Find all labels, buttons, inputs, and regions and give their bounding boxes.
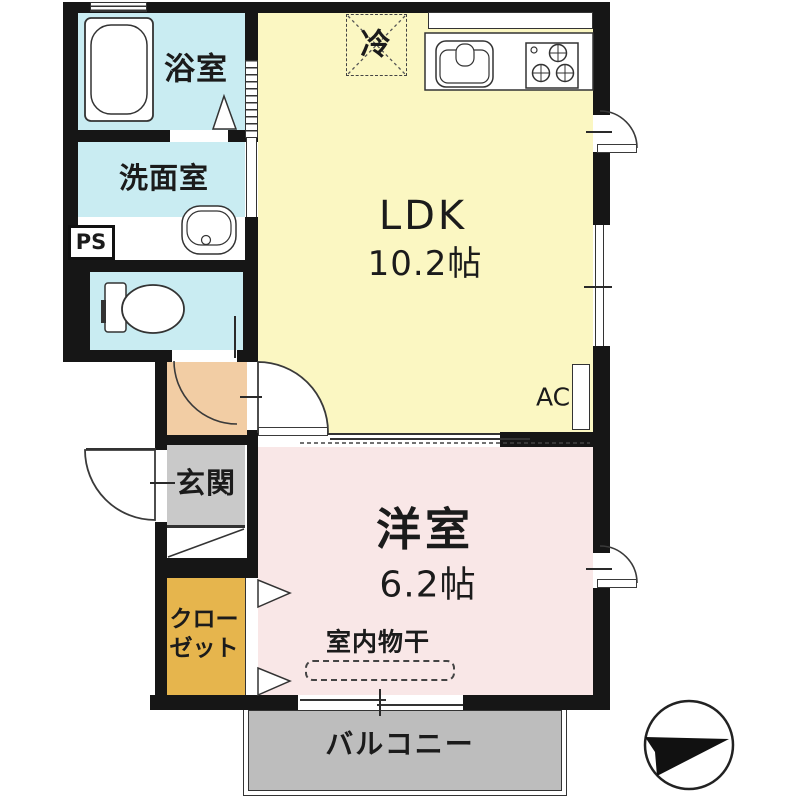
label-closet: クロー ゼット bbox=[170, 605, 239, 663]
gas-stove-icon bbox=[526, 43, 578, 88]
ldk-hall-door-arc bbox=[258, 362, 328, 432]
tick-balcony-window bbox=[379, 689, 381, 716]
tick-ldk-door bbox=[586, 131, 612, 133]
label-bathroom: 浴室 bbox=[164, 51, 228, 90]
tick-western-door bbox=[586, 568, 612, 570]
ldk-outside-door-leaf bbox=[597, 144, 637, 153]
ldk-hall-door-leaf bbox=[258, 427, 328, 436]
shoebox-diagonal bbox=[168, 529, 244, 557]
washbasin-icon bbox=[182, 206, 236, 254]
indoor-drying-rect bbox=[305, 660, 455, 681]
ldk-outside-door-arc bbox=[600, 111, 637, 148]
label-washroom: 洗面室 bbox=[119, 160, 209, 196]
label-refrigerator: 冷 bbox=[361, 26, 392, 64]
toilet-door-leaf bbox=[234, 316, 236, 358]
entrance-door-leaf bbox=[86, 448, 156, 450]
label-ldk: LDK bbox=[379, 191, 467, 241]
bathroom-door-icon bbox=[213, 96, 236, 129]
toilet-icon bbox=[101, 283, 184, 333]
label-western-size: 6.2帖 bbox=[379, 563, 476, 608]
label-western-room: 洋室 bbox=[376, 502, 474, 558]
label-indoor-drying: 室内物干 bbox=[326, 626, 430, 657]
western-outside-door-leaf bbox=[597, 579, 637, 588]
floorplan: 浴室 洗面室 PS 冷 LDK 10.2帖 AC 玄関 クロー ゼット 洋室 6… bbox=[0, 0, 800, 798]
toilet-door-arc bbox=[174, 361, 237, 424]
tick-entrance bbox=[150, 482, 175, 484]
label-entrance: 玄関 bbox=[176, 465, 236, 501]
label-ac: AC bbox=[536, 381, 570, 412]
closet-bifold-doors bbox=[258, 580, 290, 695]
bathtub-icon bbox=[85, 18, 153, 121]
label-ldk-size: 10.2帖 bbox=[368, 243, 483, 286]
ac-unit bbox=[572, 364, 590, 430]
kitchen-sink-icon bbox=[436, 41, 493, 87]
label-pipe-space: PS bbox=[76, 229, 107, 255]
tick-hall-opening bbox=[240, 396, 262, 398]
entrance-door-arc bbox=[85, 450, 155, 520]
tick-ldk-window bbox=[584, 286, 612, 288]
north-arrow-icon bbox=[645, 701, 733, 789]
western-outside-door-arc bbox=[600, 546, 637, 583]
label-balcony: バルコニー bbox=[325, 727, 474, 762]
